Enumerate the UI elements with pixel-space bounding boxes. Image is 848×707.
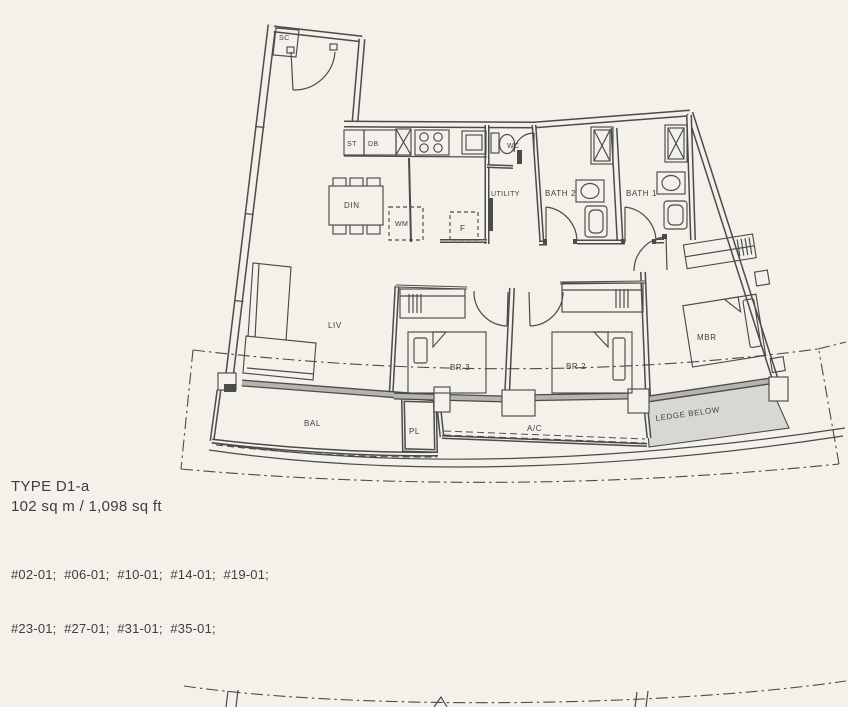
label-sc: SC: [279, 35, 290, 42]
plan-info: TYPE D1-a 102 sq m / 1,098 sq ft #02-01;…: [11, 477, 269, 707]
entry-door-arc: [293, 52, 335, 90]
wardrobe-br2: [562, 283, 643, 312]
label-br2: BR 2: [566, 362, 586, 371]
unit-list-01: #02-01; #06-01; #10-01; #14-01; #19-01; …: [11, 530, 269, 674]
label-utility: UTILITY: [491, 191, 520, 198]
plan-area: 102 sq m / 1,098 sq ft: [11, 497, 269, 517]
br3-door-arc: [474, 291, 507, 326]
utility-door-leaf: [488, 198, 493, 231]
br2-furniture: [552, 283, 643, 393]
unit-list-01-line2: #23-01; #27-01; #31-01; #35-01;: [11, 620, 269, 638]
unit-list-01-line1: #02-01; #06-01; #10-01; #14-01; #19-01;: [11, 566, 269, 584]
label-wc: WC: [507, 143, 519, 150]
wardrobe-br3: [400, 289, 465, 318]
label-bal: BAL: [304, 419, 321, 428]
hob: [415, 130, 449, 155]
duct: [517, 150, 522, 164]
bed-br2: [552, 332, 632, 393]
unit-list-12: #02-12; #06-12; #10-12; #15-12; #19-12; …: [11, 684, 269, 707]
label-bath1: BATH 1: [626, 189, 657, 198]
label-mbr: MBR: [697, 333, 717, 342]
label-br3: BR 3: [450, 363, 470, 372]
room-labels: SC ST DB WC UTILITY BATH 2 BATH 1 DIN WM…: [279, 35, 720, 436]
floor-plan-page: SC ST DB WC UTILITY BATH 2 BATH 1 DIN WM…: [0, 0, 848, 707]
label-pl: PL: [409, 427, 420, 436]
br3-furniture: [400, 289, 486, 393]
adjacent-unit-fragment: [184, 681, 846, 707]
label-f: F: [460, 224, 466, 233]
label-din: DIN: [344, 201, 360, 210]
bath1-door-arc: [625, 207, 656, 241]
label-liv: LIV: [328, 321, 342, 330]
label-ac: A/C: [527, 424, 542, 433]
label-wm: WM: [395, 221, 408, 228]
bath2-door-arc: [546, 207, 577, 241]
label-st: ST: [347, 141, 357, 148]
plan-type-title: TYPE D1-a: [11, 477, 269, 497]
toilet-bath2: [585, 206, 607, 237]
label-db: DB: [368, 141, 379, 148]
label-bath2: BATH 2: [545, 189, 576, 198]
bath2-fittings: [576, 127, 613, 237]
sofa: [243, 263, 316, 380]
br2-door-arc: [530, 292, 563, 326]
bath1-fittings: [657, 125, 687, 229]
